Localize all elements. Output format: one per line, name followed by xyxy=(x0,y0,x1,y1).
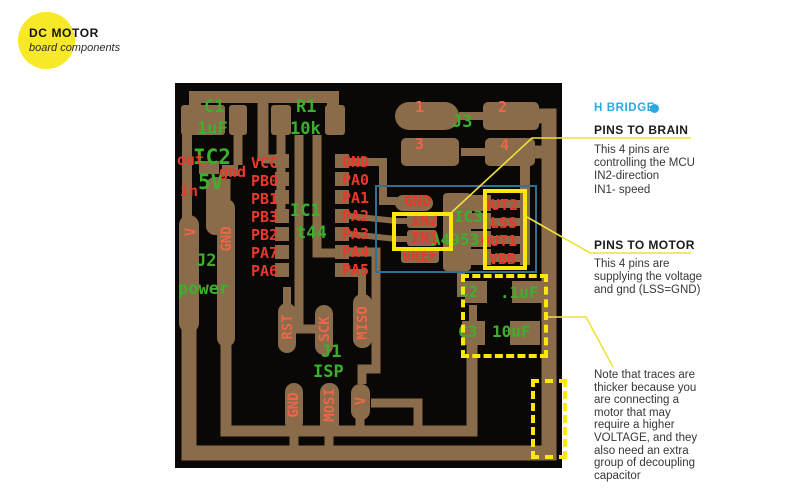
pcb-label-vcc-22: VCC xyxy=(251,156,278,171)
note-line: thicker because you xyxy=(594,382,697,395)
annotation-line: controlling the MCU xyxy=(594,157,695,170)
pcb-label-ic1-9: IC1 xyxy=(290,203,321,220)
badge-title: DC MOTOR xyxy=(29,26,99,40)
badge-subtitle: board components xyxy=(29,42,120,54)
note-line: also need an extra xyxy=(594,445,697,458)
pcb-label-j3-11: J3 xyxy=(452,114,472,131)
note-line: motor that may xyxy=(594,407,697,420)
pcb-label-isp-15: ISP xyxy=(313,364,344,381)
annotation-line: IN1- speed xyxy=(594,184,695,197)
annotation-body-pins-to-brain: This 4 pins are controlling the MCU IN2-… xyxy=(594,144,695,197)
pcb-label-in-8: in xyxy=(180,184,198,199)
annotation-heading-pins-to-brain: PINS TO BRAIN xyxy=(594,123,688,137)
pcb-label-gnd-29: GND xyxy=(342,155,369,170)
pcb-label-pb0-23: PB0 xyxy=(251,174,278,189)
annotation-heading-pins-to-motor: PINS TO MOTOR xyxy=(594,238,695,252)
note-line: are connecting a xyxy=(594,394,697,407)
pcb-label-pb1-24: PB1 xyxy=(251,192,278,207)
pcb-label-pb2-26: PB2 xyxy=(251,228,278,243)
pcb-label-4-47: 4 xyxy=(500,138,509,153)
note-line: require a higher xyxy=(594,419,697,432)
annotation-line: This 4 pins are xyxy=(594,144,695,157)
highlight-box-pins-to-brain xyxy=(392,212,453,251)
badge-circle xyxy=(18,12,75,69)
pcb-label-pb3-25: PB3 xyxy=(251,210,278,225)
pcb-label-sck-51: SCK xyxy=(318,316,332,341)
pcb-label-v-48: V xyxy=(184,228,198,236)
pcb-label-c1-0: C1 xyxy=(204,99,224,116)
pcb-label-power-13: power xyxy=(178,281,229,298)
note-line: capacitor xyxy=(594,470,697,483)
pcb-label-2-45: 2 xyxy=(498,100,507,115)
pcb-label-pa6-28: PA6 xyxy=(251,264,278,279)
pcb-label-mosi-54: MOSI xyxy=(323,388,337,422)
note-line: group of decoupling xyxy=(594,457,697,470)
annotation-line: and gnd (LSS=GND) xyxy=(594,284,702,297)
h-bridge-label: H BRIDGE xyxy=(594,102,655,114)
pcb-label-10k-3: 10k xyxy=(290,121,321,138)
pcb-label-gnd-7: gnd xyxy=(219,165,246,180)
pcb-label-pa3-33: PA3 xyxy=(342,227,369,242)
page: DC MOTOR board components xyxy=(0,0,800,498)
pcb-label-out-6: out xyxy=(177,153,204,168)
pcb-label-pa4-34: PA4 xyxy=(342,245,369,260)
h-bridge-dot-icon xyxy=(650,104,659,113)
note-line: VOLTAGE, and they xyxy=(594,432,697,445)
pcb-label-r1-2: R1 xyxy=(296,99,316,116)
annotation-line: supplying the voltage xyxy=(594,271,702,284)
pcb-label-j2-12: J2 xyxy=(196,253,216,270)
annotation-note: Note that traces are thicker because you… xyxy=(594,369,697,482)
pcb-label-pa7-27: PA7 xyxy=(251,246,278,261)
note-line: Note that traces are xyxy=(594,369,697,382)
pcb-label-1uf-1: 1uF xyxy=(197,121,228,138)
pcb-board: C11uFR110kIC25VoutgndinIC1t44J3J2powerJ1… xyxy=(175,83,562,468)
thick-traces-dashed-box xyxy=(531,379,567,459)
pcb-label-rst-50: RST xyxy=(281,314,295,339)
pcb-label-pa5-35: PA5 xyxy=(342,263,369,278)
pcb-label-miso-52: MISO xyxy=(356,306,370,340)
annotation-line: This 4 pins are xyxy=(594,258,702,271)
pcb-label-1-44: 1 xyxy=(415,100,424,115)
decoupling-caps-dashed-box xyxy=(461,274,548,358)
pcb-label-pa0-30: PA0 xyxy=(342,173,369,188)
pcb-label-v-55: V xyxy=(354,397,368,405)
pcb-label-pa1-31: PA1 xyxy=(342,191,369,206)
pcb-label-gnd-53: GND xyxy=(287,392,301,417)
pcb-label-gnd-49: GND xyxy=(220,226,234,251)
pcb-label-3-46: 3 xyxy=(415,137,424,152)
pcb-label-pa2-32: PA2 xyxy=(342,209,369,224)
pcb-label-t44-10: t44 xyxy=(296,225,327,242)
pcb-label-j1-14: J1 xyxy=(321,344,341,361)
annotation-body-pins-to-motor: This 4 pins are supplying the voltage an… xyxy=(594,258,702,298)
highlight-box-pins-to-motor xyxy=(483,189,527,270)
annotation-line: IN2-direction xyxy=(594,170,695,183)
